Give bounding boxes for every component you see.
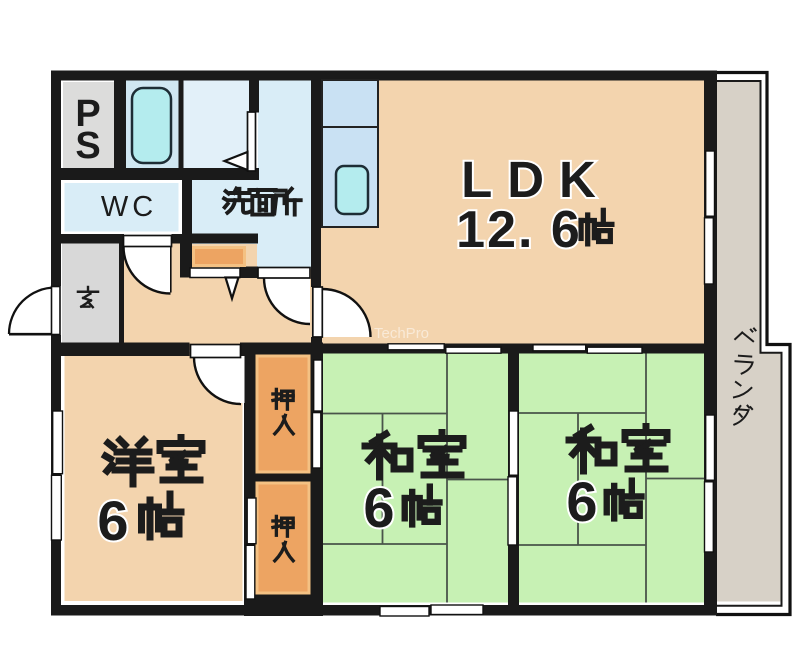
svg-text:6: 6 bbox=[363, 476, 394, 539]
svg-text:TechPro: TechPro bbox=[374, 325, 429, 342]
svg-text:LDK: LDK bbox=[461, 151, 611, 208]
svg-text:6: 6 bbox=[97, 489, 128, 552]
svg-text:6: 6 bbox=[566, 470, 597, 533]
svg-text:12. 6: 12. 6 bbox=[456, 201, 582, 259]
svg-text:WC: WC bbox=[101, 191, 157, 223]
svg-text:S: S bbox=[75, 125, 100, 167]
